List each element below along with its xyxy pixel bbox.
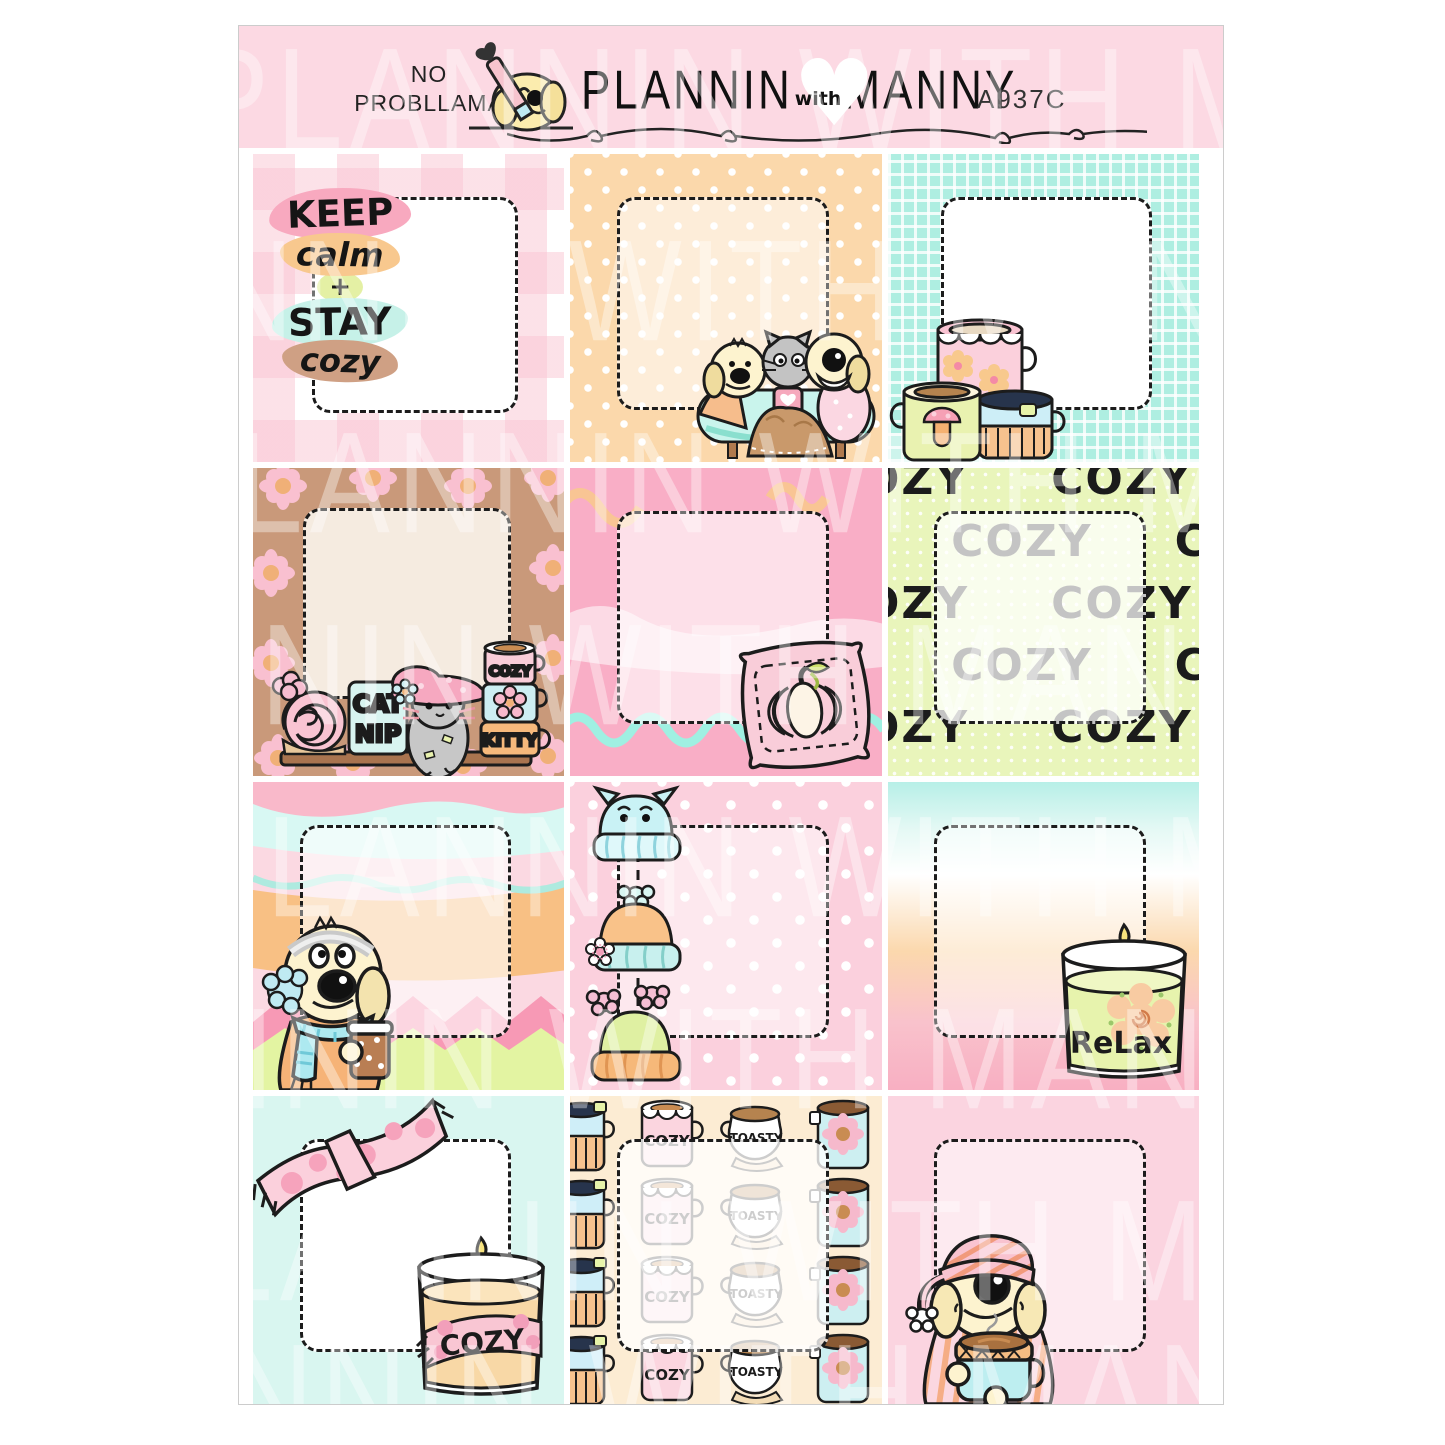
note-square [934,511,1146,724]
sticker-sheet: NO PROBLLAMA ♥ PLANNINwithMANNY A937C [238,25,1224,1405]
note-square [617,1139,829,1352]
sticker-cuddle-couch [570,154,881,462]
catnip-label-bottom: NIP [355,720,402,748]
pumpkin-pillow-illustration [730,634,880,774]
manny-bedtime-illustration [894,1208,1079,1404]
sticker-grid: KEEP calm + STAY cozy [253,154,1199,1404]
sticker-bedtime-manny [888,1096,1199,1404]
sticker-cozy-words: COZYCOZYCOZY COZYCOZYCOZY COZYCOZYCOZY C… [888,468,1199,776]
sticker-mug-stack [888,154,1199,462]
relax-candle-illustration: ReLax [1049,903,1199,1088]
kitty-mug-label: KITTY [482,731,538,751]
polka-scarf-illustration [253,1096,463,1228]
sticker-pumpkin-pillow [570,468,881,776]
sticker-cat-shelf: CAT NIP [253,468,564,776]
word-calm: calm [280,232,400,277]
cat-nip-shelf-illustration: CAT NIP [253,600,564,776]
sticker-scarf-candle: COZY [253,1096,564,1404]
dogs-and-cat-couch-illustration [686,316,882,462]
sticker-mug-pattern [570,1096,881,1404]
sheet-header: NO PROBLLAMA ♥ PLANNINwithMANNY A937C [239,26,1223,148]
relax-candle-label: ReLax [1070,1026,1172,1061]
product-code: A937C [977,84,1067,115]
cozy-mug-label: COZY [489,664,532,680]
sticker-relax-candle: ReLax [888,782,1199,1090]
sticker-beanie-hats [570,782,881,1090]
brand-with: with [795,88,842,110]
word-cozy: cozy [281,338,399,384]
brand-title: ♥ PLANNINwithMANNY [581,66,1017,116]
sticker-keep-calm: KEEP calm + STAY cozy [253,154,564,462]
cozy-candle-illustration: COZY [405,1224,560,1404]
sticker-winter-manny [253,782,564,1090]
stacked-mugs-illustration [888,308,1082,462]
manny-winter-illustration [255,894,425,1090]
brand-plannin: PLANNIN [581,60,793,123]
three-beanies-illustration [578,784,698,1088]
keep-calm-lettering: KEEP calm + STAY cozy [269,188,412,382]
